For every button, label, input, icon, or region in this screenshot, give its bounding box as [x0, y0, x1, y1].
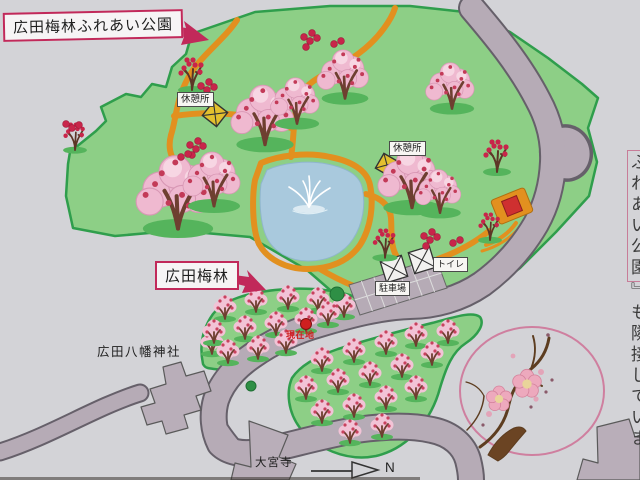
current-location-dot	[301, 319, 312, 330]
plum-grove-callout: 広田梅林	[155, 261, 239, 290]
toilet-label: トイレ	[433, 257, 468, 272]
adjacent-park-note: ふれあい公園』も隣接していま	[625, 150, 640, 480]
entrance-tree-dot	[330, 287, 344, 301]
adjacent-park-note-rest: 』も隣接していま	[628, 282, 640, 450]
north-label: N	[382, 461, 398, 474]
shrine-label: 広田八幡神社	[94, 346, 184, 359]
temple-label: 大宮寺	[252, 457, 296, 470]
map-canvas	[0, 0, 640, 480]
adjacent-park-name: ふれあい公園	[627, 150, 640, 282]
rest-area-label: 休憩所	[177, 92, 214, 107]
current-location-label: 現在地	[283, 329, 318, 342]
tree-dot	[246, 381, 256, 391]
park-title-callout: 広田梅林ふれあい公園	[3, 9, 184, 42]
park-sign-map: 広田梅林ふれあい公園 広田梅林 休憩所 休憩所 トイレ 駐車場 現在地 広田八幡…	[0, 0, 640, 480]
rest-area-label: 休憩所	[389, 141, 426, 156]
parking-label: 駐車場	[375, 281, 410, 296]
